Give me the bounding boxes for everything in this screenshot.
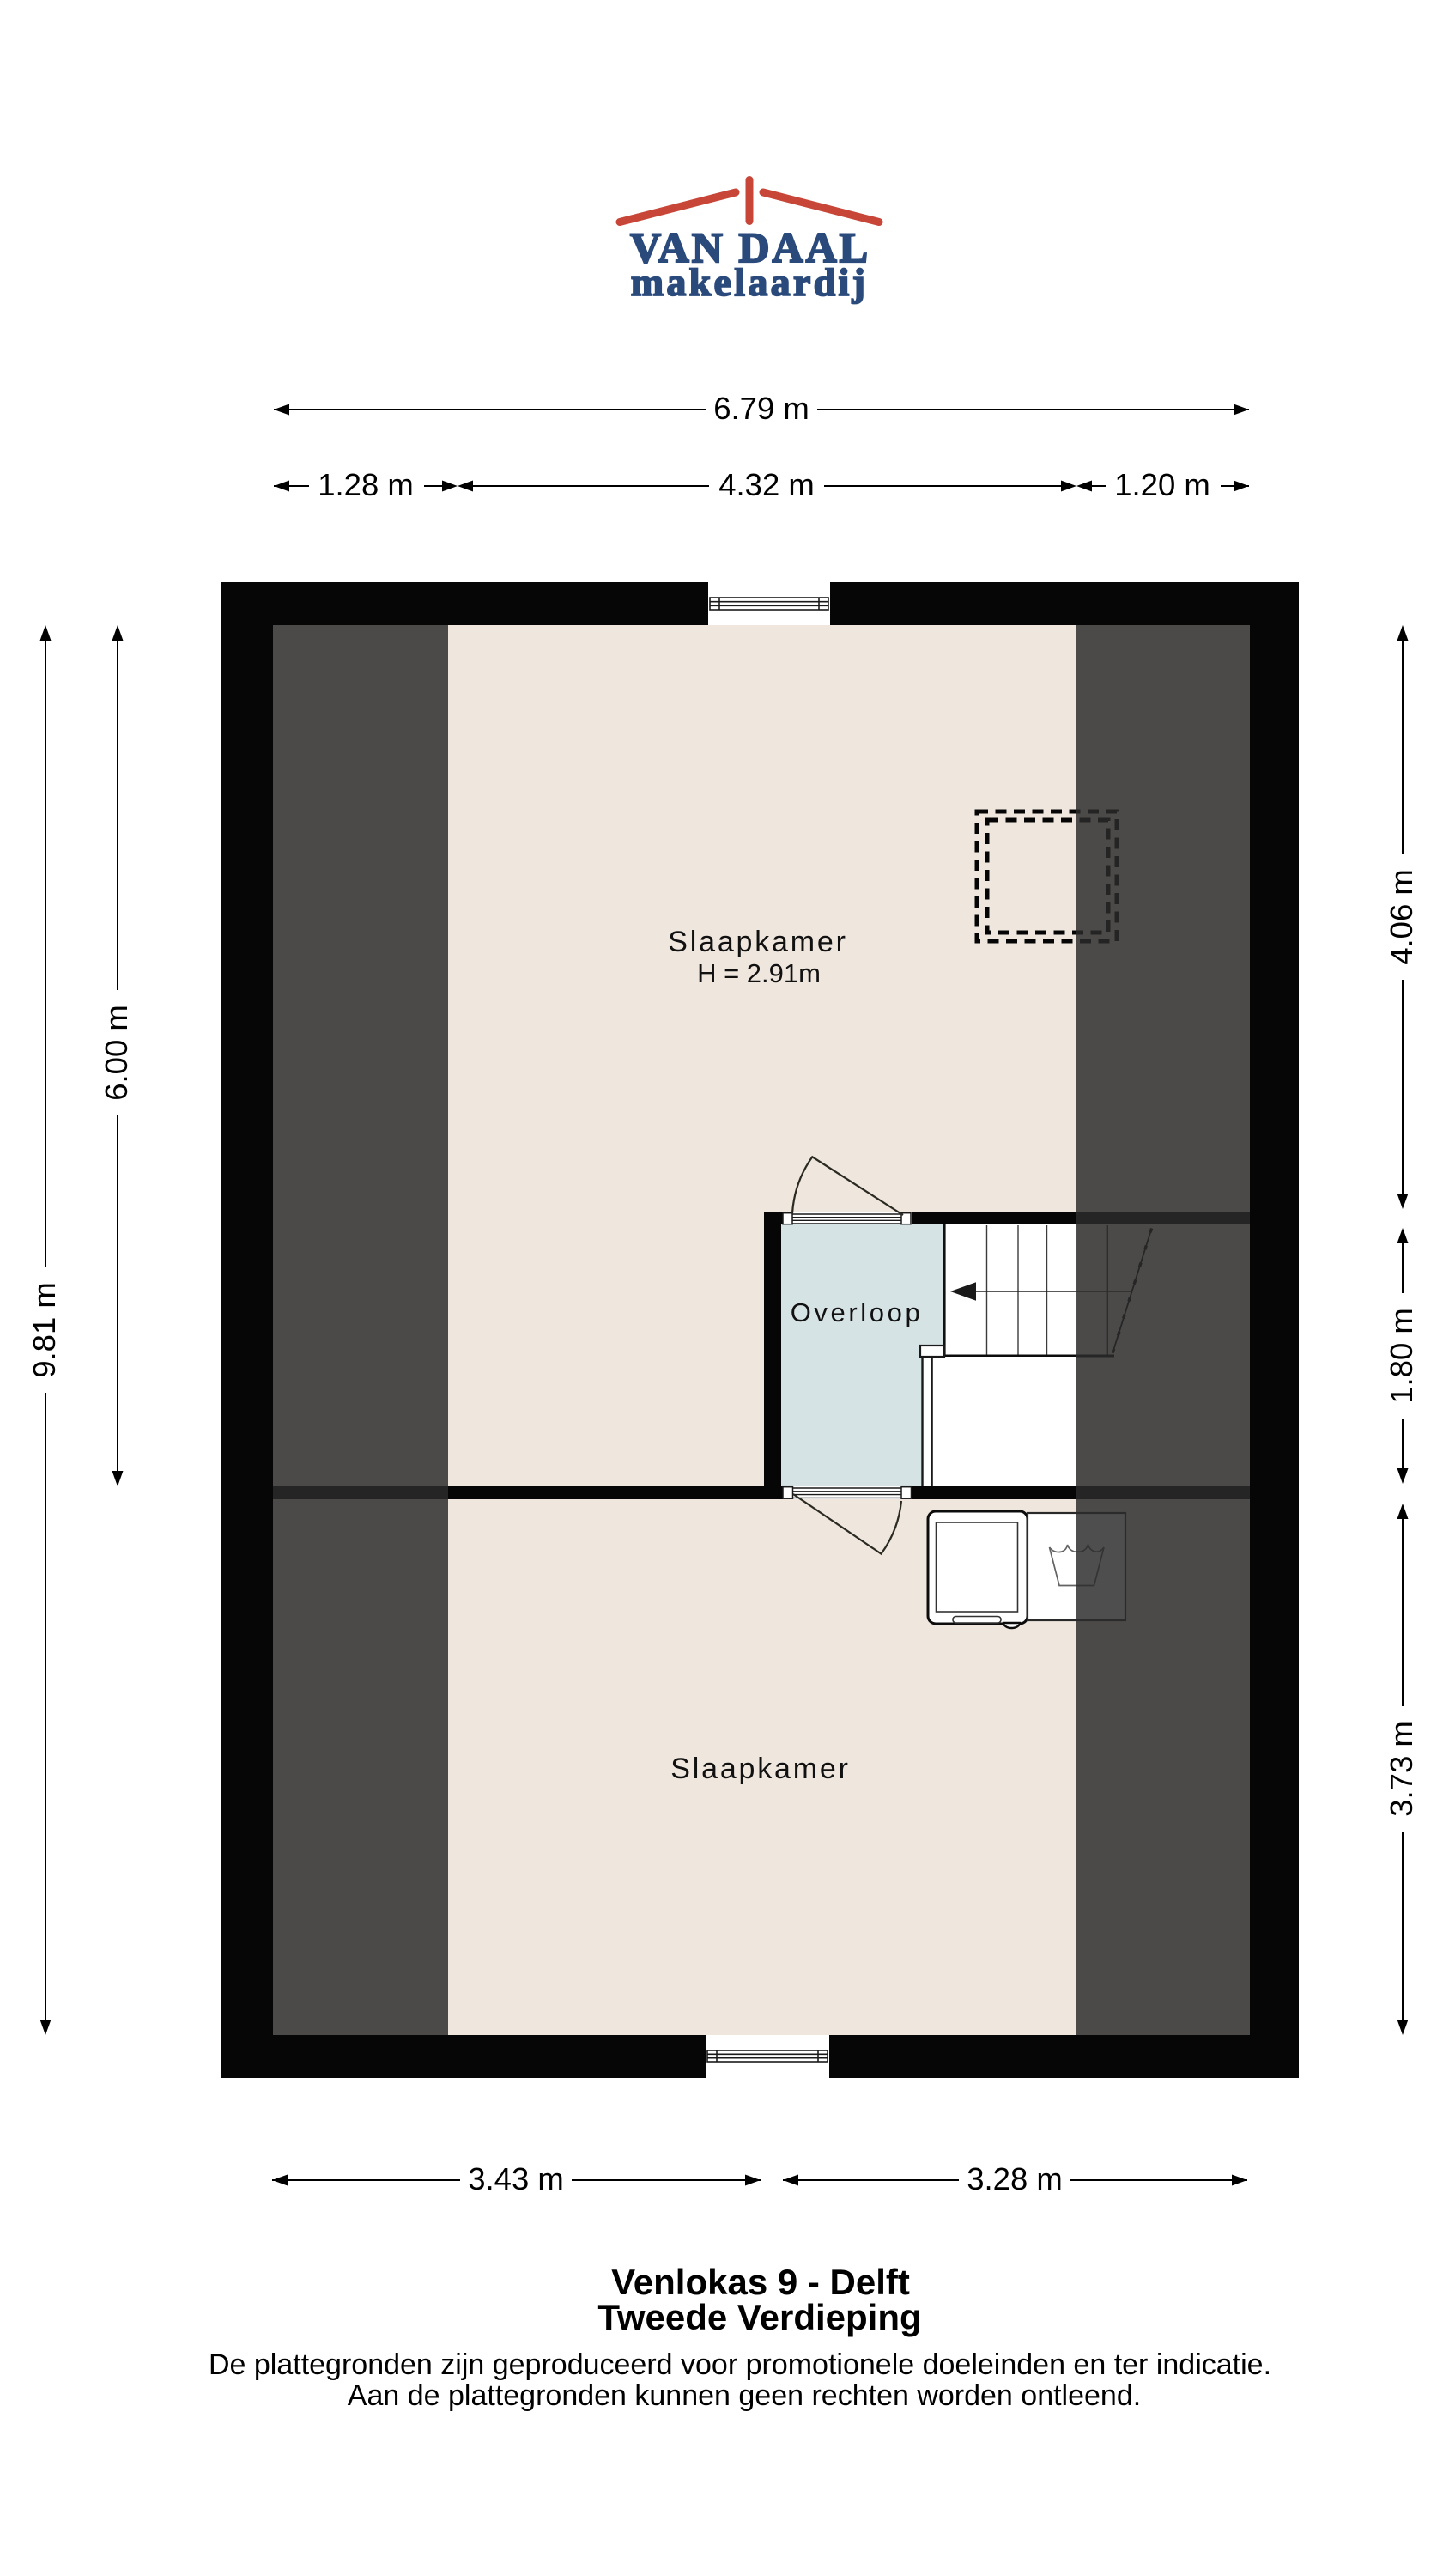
svg-text:Tweede Verdieping: Tweede Verdieping	[597, 2297, 921, 2337]
svg-text:De plattegronden zijn geproduc: De plattegronden zijn geproduceerd voor …	[209, 2348, 1271, 2381]
svg-text:Slaapkamer: Slaapkamer	[670, 1753, 850, 1785]
svg-text:9.81 m: 9.81 m	[27, 1282, 62, 1378]
svg-text:Aan de plattegronden kunnen ge: Aan de plattegronden kunnen geen rechten…	[348, 2379, 1141, 2412]
svg-text:Venlokas 9 - Delft: Venlokas 9 - Delft	[611, 2262, 910, 2302]
svg-text:3.28 m: 3.28 m	[967, 2161, 1063, 2196]
svg-text:Overloop: Overloop	[791, 1297, 924, 1327]
svg-text:4.32 m: 4.32 m	[718, 467, 815, 502]
svg-text:6.79 m: 6.79 m	[713, 391, 809, 426]
svg-text:3.73 m: 3.73 m	[1384, 1721, 1419, 1817]
svg-text:Slaapkamer: Slaapkamer	[668, 926, 847, 958]
svg-text:4.06 m: 4.06 m	[1384, 869, 1419, 965]
svg-text:3.43 m: 3.43 m	[468, 2161, 564, 2196]
svg-text:makelaardij: makelaardij	[631, 260, 869, 304]
svg-text:1.80 m: 1.80 m	[1384, 1308, 1419, 1404]
svg-text:H = 2.91m: H = 2.91m	[697, 958, 821, 988]
svg-text:6.00 m: 6.00 m	[99, 1005, 134, 1101]
svg-text:1.28 m: 1.28 m	[318, 467, 414, 502]
svg-text:1.20 m: 1.20 m	[1114, 467, 1210, 502]
